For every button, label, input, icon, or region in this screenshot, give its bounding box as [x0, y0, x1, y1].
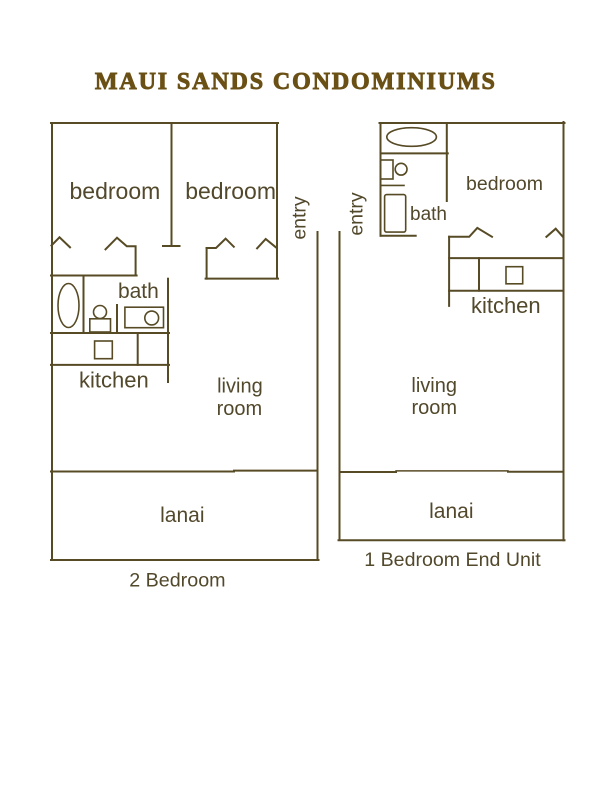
svg-text:lanai: lanai — [429, 500, 473, 523]
svg-text:kitchen: kitchen — [471, 293, 541, 318]
svg-text:entry: entry — [289, 196, 311, 240]
svg-text:1 Bedroom End Unit: 1 Bedroom End Unit — [364, 549, 541, 571]
svg-text:2 Bedroom: 2 Bedroom — [129, 569, 225, 591]
svg-text:room: room — [217, 398, 263, 420]
svg-text:living: living — [411, 375, 457, 397]
svg-text:kitchen: kitchen — [79, 367, 149, 392]
svg-text:entry: entry — [346, 192, 368, 236]
svg-text:bedroom: bedroom — [185, 178, 276, 204]
svg-text:bedroom: bedroom — [70, 178, 161, 204]
svg-text:lanai: lanai — [160, 504, 204, 527]
svg-text:bedroom: bedroom — [466, 173, 543, 195]
svg-text:living: living — [217, 375, 263, 397]
svg-text:bath: bath — [410, 204, 447, 225]
svg-text:bath: bath — [118, 280, 159, 303]
svg-text:MAUI SANDS CONDOMINIUMS: MAUI SANDS CONDOMINIUMS — [95, 69, 497, 95]
svg-text:room: room — [412, 397, 458, 419]
